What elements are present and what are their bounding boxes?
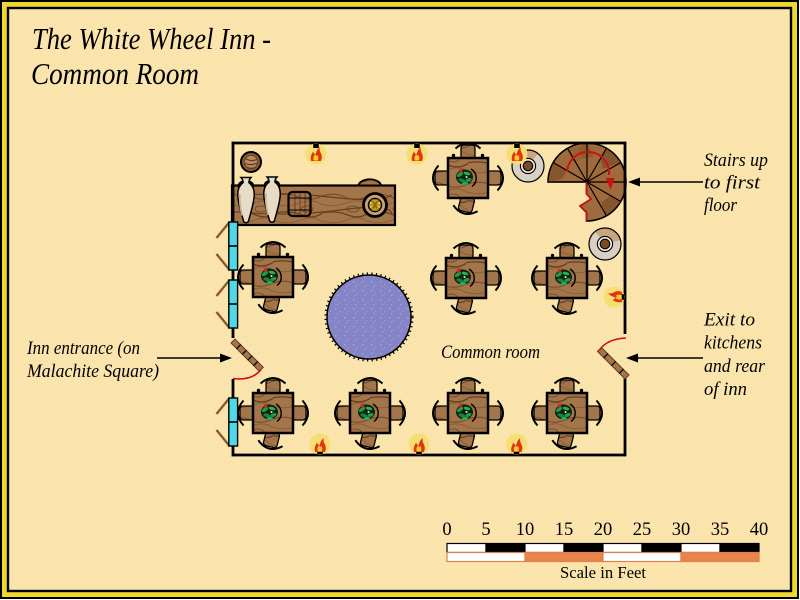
- svg-text:floor: floor: [704, 195, 738, 216]
- svg-text:Malachite Square): Malachite Square): [26, 361, 159, 382]
- svg-text:40: 40: [750, 520, 769, 540]
- svg-text:30: 30: [672, 520, 691, 540]
- svg-text:and rear: and rear: [704, 356, 766, 377]
- svg-text:35: 35: [711, 520, 730, 540]
- svg-text:5: 5: [481, 520, 490, 540]
- svg-text:Common Room: Common Room: [31, 56, 199, 91]
- svg-text:Common room: Common room: [441, 342, 540, 363]
- svg-text:The White Wheel Inn -: The White Wheel Inn -: [32, 21, 271, 56]
- svg-text:of inn: of inn: [704, 379, 747, 400]
- svg-text:Stairs up: Stairs up: [704, 150, 768, 171]
- svg-text:Scale in Feet: Scale in Feet: [560, 563, 646, 582]
- svg-text:15: 15: [555, 520, 574, 540]
- svg-text:10: 10: [516, 520, 535, 540]
- svg-text:25: 25: [633, 520, 652, 540]
- svg-text:Exit to: Exit to: [703, 310, 755, 331]
- svg-text:to first: to first: [704, 173, 761, 194]
- svg-text:Inn entrance (on: Inn entrance (on: [26, 338, 140, 359]
- svg-text:20: 20: [594, 520, 613, 540]
- svg-text:0: 0: [442, 520, 451, 540]
- svg-text:kitchens: kitchens: [704, 333, 762, 354]
